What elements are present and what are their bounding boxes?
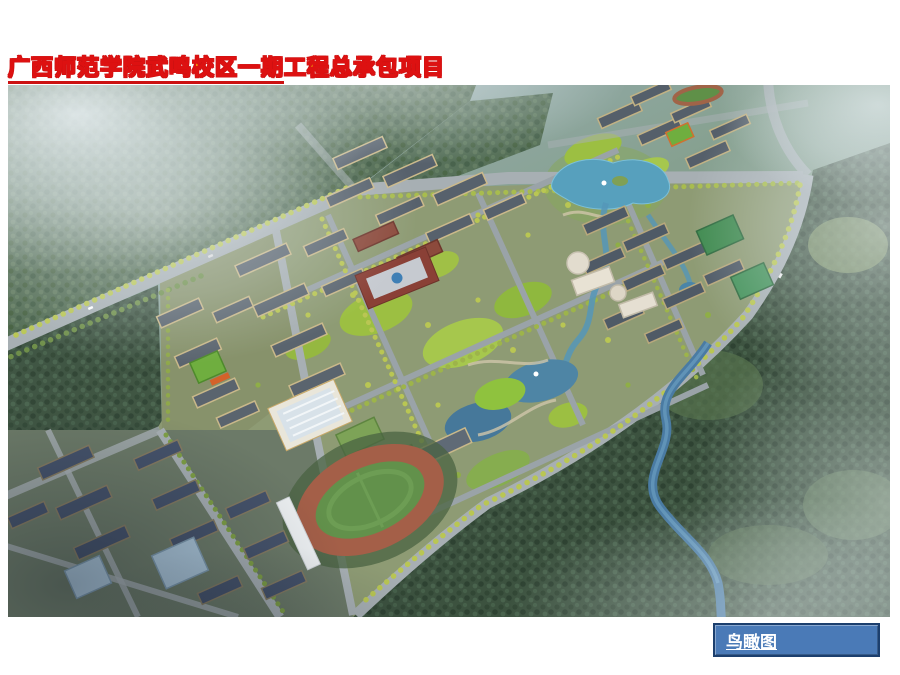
- birds-eye-view-label: 鸟瞰图: [726, 628, 777, 653]
- roof-blue-circle: [392, 273, 403, 284]
- birds-eye-view-button[interactable]: 鸟瞰图: [713, 623, 880, 657]
- slide-title-rest: 工程总承包项目: [284, 55, 445, 80]
- presentation-slide: 广西师范学院武鸣校区一期工程总承包项目: [0, 0, 900, 675]
- campus-aerial-rendering: [8, 85, 890, 617]
- lake-fountain: [602, 181, 607, 186]
- slide-title: 广西师范学院武鸣校区一期工程总承包项目: [8, 50, 445, 82]
- slide-title-underlined: 广西师范学院武鸣校区一期: [8, 55, 284, 84]
- pond-fountain: [534, 372, 539, 377]
